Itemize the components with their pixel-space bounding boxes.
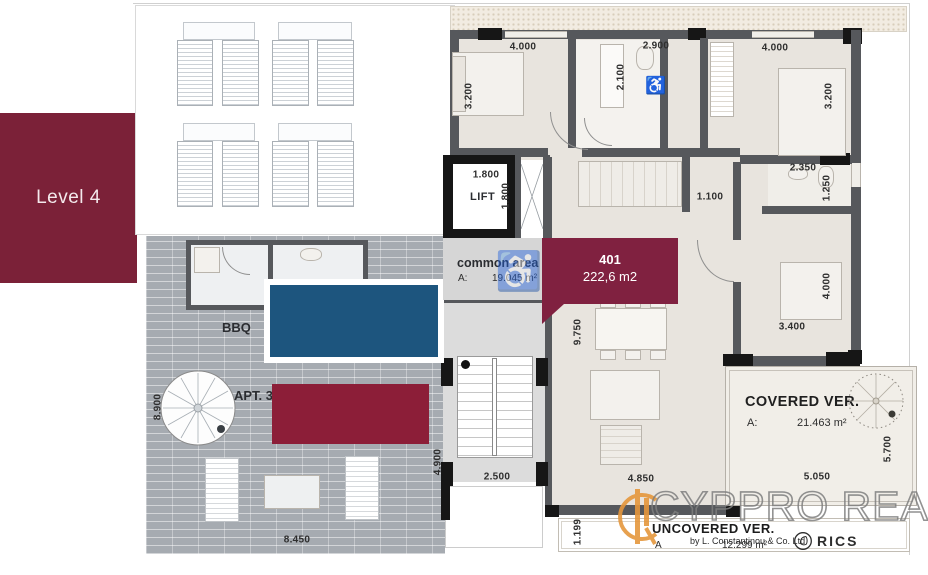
column: [826, 352, 860, 366]
panel-bracket: [183, 22, 255, 40]
column: [545, 505, 559, 517]
uncovered-veranda-title: UNCOVERED VER.: [652, 521, 775, 536]
panel-bracket: [278, 22, 352, 40]
sink: [818, 166, 834, 188]
level-label-box: Level 4: [0, 113, 137, 283]
panel-bracket: [278, 123, 352, 141]
column: [536, 462, 548, 486]
covered-veranda-title: COVERED VER.: [745, 394, 859, 410]
unit-number: 401: [542, 252, 678, 267]
chair: [600, 350, 616, 360]
toilet: [300, 248, 322, 261]
pool: [270, 285, 438, 357]
window: [851, 163, 861, 187]
pillow: [452, 56, 466, 112]
shower: [194, 247, 220, 273]
service-shaft: [521, 164, 543, 229]
apartment-3-label: APT. 3: [234, 388, 273, 403]
wall: [682, 157, 690, 212]
compass-rose: [158, 368, 238, 448]
rics-lion-icon: [793, 531, 813, 551]
hall-closet: [578, 161, 682, 207]
toilet: [788, 168, 808, 180]
stair-post: [461, 360, 470, 369]
redaction-box: [272, 384, 429, 444]
covered-veranda-value: 21.463 m²: [797, 417, 847, 429]
chair: [625, 350, 641, 360]
sheet-border: [133, 3, 910, 4]
brand-byline: by L. Constantinou & Co. Ltd: [690, 536, 805, 546]
dining-table: [595, 308, 667, 350]
louvre-panel: [272, 141, 309, 207]
louvre-panel: [222, 141, 259, 207]
chair: [650, 350, 666, 360]
rics-logo: RICS: [793, 531, 858, 551]
door-opening: [733, 240, 741, 282]
terrace-table: [264, 475, 320, 509]
compass-rose: [845, 370, 907, 432]
louvre-panel: [177, 40, 213, 106]
louvre-panel: [317, 141, 354, 207]
bed: [778, 68, 846, 156]
bathtub: [600, 44, 624, 108]
wall: [543, 155, 550, 238]
louvre-panel: [317, 40, 354, 106]
unit-area: 222,6 m2: [542, 269, 678, 284]
stair-rail: [492, 358, 497, 456]
wall: [762, 206, 852, 214]
covered-veranda-prefix: A:: [747, 417, 757, 429]
sun-lounger: [205, 458, 239, 522]
column: [536, 358, 548, 386]
window: [752, 31, 814, 38]
level-label: Level 4: [36, 187, 101, 209]
louvre-panel: [222, 40, 259, 106]
rics-label: RICS: [817, 533, 858, 549]
common-area-prefix: A:: [458, 273, 467, 284]
door-opening: [548, 148, 582, 157]
ensuite-bathroom: [768, 163, 852, 208]
toilet: [636, 46, 654, 70]
wardrobe: [600, 425, 642, 465]
panel-bracket: [183, 123, 255, 141]
floor-plan-sheet: Level 4 APT. 3 BBQ: [0, 0, 928, 575]
bbq-label: BBQ: [222, 320, 251, 335]
window: [505, 31, 567, 38]
accessible-icon: ♿: [645, 76, 666, 96]
wardrobe: [710, 42, 734, 117]
sofa: [590, 370, 660, 420]
bed: [780, 262, 842, 320]
louvre-panel: [177, 141, 213, 207]
lift-label: LIFT: [470, 191, 495, 203]
unit-badge: 401 222,6 m2: [542, 238, 678, 304]
wall: [851, 30, 861, 360]
column: [723, 354, 753, 366]
insulation-band: [450, 6, 907, 32]
sun-lounger: [345, 456, 379, 520]
louvre-panel: [272, 40, 309, 106]
accessible-icon: ♿: [495, 250, 542, 294]
landing-below: [445, 486, 543, 548]
column: [441, 470, 450, 520]
column: [478, 28, 502, 40]
wall: [700, 38, 708, 153]
